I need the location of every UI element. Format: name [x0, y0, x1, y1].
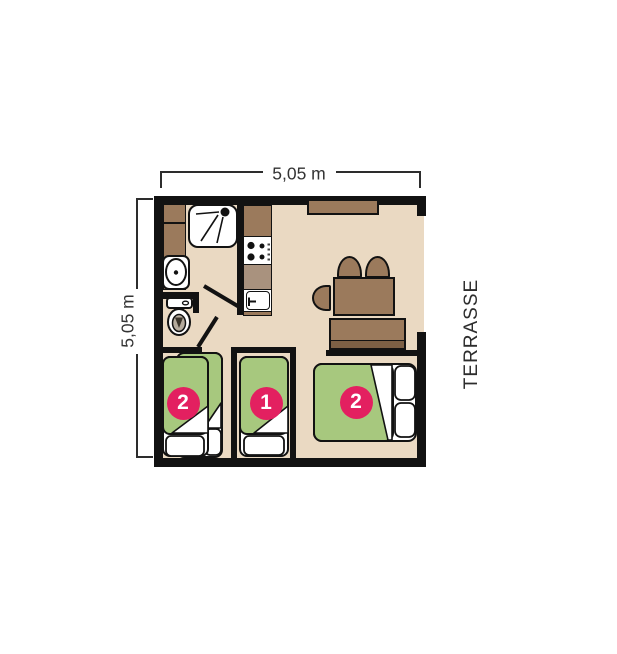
dim-left-label: 5,05 m [118, 294, 139, 348]
wall-bedroom-divider-left [231, 347, 237, 458]
dining-table [333, 277, 395, 316]
kitchen-block [243, 205, 272, 316]
wall-left [154, 196, 163, 467]
kitchen-plinth [244, 311, 271, 314]
dim-top-line-left [160, 171, 263, 173]
dim-top-line-right [336, 171, 421, 173]
wall-bathroom-bottom [163, 292, 199, 299]
badge-bedroom-middle: 1 [250, 387, 283, 420]
wall-bedroom-right-top [326, 350, 417, 356]
floor-plan-canvas: 2 1 2 5,05 m 5,05 m TERRASSE [0, 0, 617, 654]
wall-bottom [154, 458, 426, 467]
wall-bedroom-left-top [163, 347, 202, 353]
window [307, 199, 379, 215]
badge-value: 1 [260, 391, 272, 415]
kitchen-cabinet [244, 206, 271, 237]
wall-bedroom-divider-middle [290, 347, 296, 458]
terrace-label: TERRASSE [461, 279, 483, 389]
kitchen-sink-basin [246, 291, 270, 310]
kitchen-counter [244, 264, 271, 290]
badge-bedroom-left: 2 [167, 387, 200, 420]
dim-top-tick-left [160, 171, 162, 188]
dim-left-line-bottom [136, 354, 138, 458]
dim-left-tick-top [136, 198, 153, 200]
sofa [329, 318, 406, 350]
wardrobe [163, 204, 186, 290]
badge-value: 2 [177, 391, 189, 415]
dim-left-tick-bottom [136, 456, 153, 458]
badge-bedroom-right: 2 [340, 386, 373, 419]
dim-top-tick-right [419, 171, 421, 188]
shower [188, 204, 238, 248]
kitchen-sink [244, 290, 271, 311]
terrace-opening [417, 216, 424, 332]
wall-toilet-stub [193, 299, 199, 313]
wall-right-lower [417, 332, 426, 467]
stove [244, 237, 271, 264]
badge-value: 2 [350, 390, 362, 414]
wall-right-upper-stub [417, 196, 426, 216]
wall-bedroom-middle-top [232, 347, 296, 353]
sofa-base [331, 340, 404, 348]
dim-left-line-top [136, 199, 138, 289]
dim-top-label: 5,05 m [272, 164, 326, 185]
wardrobe-divider [164, 222, 185, 224]
